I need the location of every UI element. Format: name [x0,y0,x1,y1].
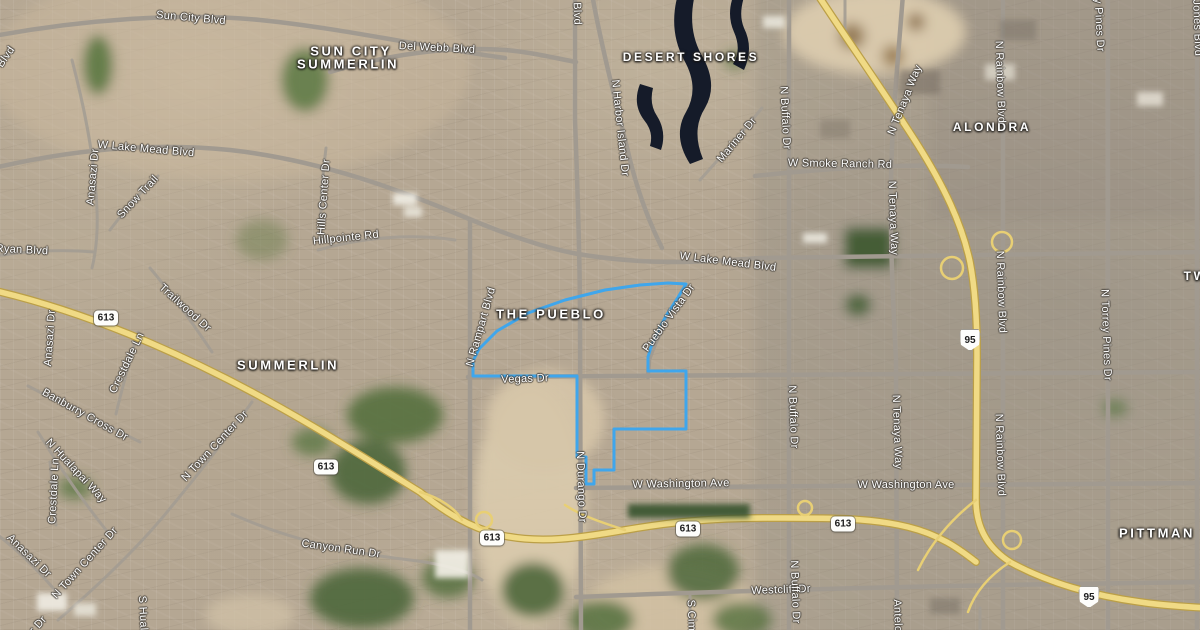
road-label: Antelope Dr [891,599,905,630]
road-label: Canyon Run Dr [301,538,382,561]
road-label: Anasazi Dr [85,148,102,206]
neighborhood-label: ALONDRA [953,120,1031,134]
terrain-shading [0,0,1200,630]
neighborhood-label: PITTMAN [1119,526,1195,541]
road-label: N Buffalo Dr [777,86,792,150]
minor-roads [0,0,980,630]
road-label: Crestdale Ln [107,331,147,396]
desert-shores-lakes [637,0,749,164]
road-label: S Cimarron Rd [685,599,700,630]
route-shield-613: 613 [314,460,338,475]
neighborhood-label: SUMMERLIN [237,358,339,373]
road-label: W Lake Mead Blvd [679,250,777,274]
road-label: Snow Trail [115,173,161,221]
road-label: Trailwood Dr [157,282,214,335]
freeways [0,0,1200,612]
terrain-texture [0,0,1200,630]
selected-area-outline [473,283,686,484]
road-label: N Town Center Dr [179,408,251,483]
route-shield-613: 613 [480,531,504,546]
road-label: N Buffalo Dr [788,560,802,624]
road-label: N Jones Blvd [1190,0,1200,56]
neighborhood-label: DESERT SHORES [623,50,760,64]
road-label: N Tenaya Way [886,181,901,256]
road-label: Blvd [0,44,17,69]
road-label: W Smoke Ranch Rd [788,157,893,171]
road-label: N Hualapai Way [43,436,109,505]
road-label: N Torrey Pines Dr [1090,0,1107,52]
road-label: N Rampart Blvd [464,286,498,368]
road-label: N Durango Dr [574,451,588,523]
road-label: Banburry Cross Dr [40,386,130,443]
road-label: W Washington Ave [857,479,954,491]
road-label: N Rainbow Blvd [993,414,1008,497]
road-label: Anasazi Dr [4,532,53,580]
neighborhood-label: TWIN LAKES [1184,269,1200,283]
map-labels-layer: SUN CITYSUMMERLINDESERT SHORESALONDRATHE… [0,0,1200,630]
map-graphics [0,0,1200,630]
road-label: N Tenaya Way [885,63,924,137]
neighborhood-label: SUMMERLIN [297,57,399,72]
road-label: N Buffalo Dr [786,385,800,449]
route-shield-613: 613 [676,522,700,537]
terrain-texture [0,0,1200,630]
buildings [37,16,1163,616]
road-label: N Rainbow Blvd [994,251,1009,334]
road-label: N Torrey Pines Dr [1098,289,1113,381]
route-shield-95: 95 [1079,586,1100,608]
road-label: Pueblo Vista Dr [640,282,697,354]
road-label: Crestdale Ln [46,458,61,525]
route-shield-613: 613 [831,517,855,532]
neighborhood-label: SUN CITY [310,44,391,59]
road-label: S Hualapai Way [136,595,152,630]
road-label: W Washington Ave [632,477,729,491]
road-label: Westcliff Dr [751,583,811,597]
road-label: Del Webb Blvd [399,40,476,56]
road-label: Ryan Blvd [0,243,49,258]
road-label: N Harbor Island Dr [609,79,631,177]
road-label: Anasazi Dr [42,309,58,366]
road-label: W Lake Mead Blvd [97,139,195,159]
road-label: N Town Center Dr [50,525,120,601]
route-shield-95: 95 [960,329,981,351]
road-label: N Tenaya Way [890,395,905,470]
road-label: N Town Center Dr [0,614,49,630]
satellite-map[interactable]: SUN CITYSUMMERLINDESERT SHORESALONDRATHE… [0,0,1200,630]
road-label: Mariner Dr [715,115,760,165]
route-shield-613: 613 [94,311,118,326]
neighborhood-label: THE PUEBLO [496,307,606,322]
terrain-patches [0,0,1200,630]
road-label: Sun City Blvd [156,9,227,27]
road-label: Hills Center Dr [315,159,332,236]
road-label: Hillpointe Rd [312,229,379,248]
road-label: N Rampart Blvd [569,0,584,25]
road-label: Vegas Dr [501,372,549,386]
road-label: N Rainbow Blvd [993,41,1008,124]
road-network [0,0,1200,630]
